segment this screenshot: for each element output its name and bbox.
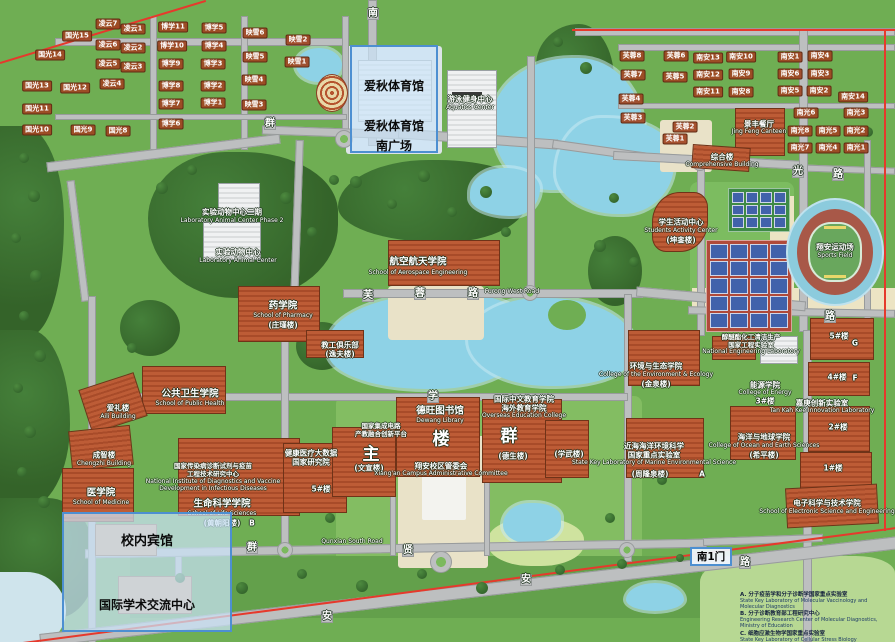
map-label: Dewang Library — [416, 418, 463, 424]
court-cell — [750, 313, 768, 328]
court-cell — [730, 244, 748, 259]
map-label: 2#楼 — [828, 423, 847, 431]
map-legend: A. 分子疫苗学和分子诊断学国家重点实验室 State Key Laborato… — [740, 592, 892, 642]
map-label: School of Pharmacy — [253, 313, 312, 319]
map-label: 景丰餐厅 — [744, 120, 774, 128]
campus-hotel-label: 校内宾馆 — [121, 530, 173, 549]
map-label: 国家研究院 — [292, 458, 330, 466]
south-gate-1-label: 南1门 — [697, 549, 725, 564]
map-label: Laboratory Animal Center — [199, 258, 276, 264]
court-cell — [730, 296, 748, 311]
map-label: 博学4 — [202, 41, 227, 52]
gym-label: 爱秋体育馆 — [364, 77, 424, 94]
map-label: 博学2 — [201, 81, 226, 92]
sports-courts — [706, 240, 792, 332]
map-label: 翔安校区管委会 — [415, 462, 468, 470]
tree — [28, 190, 40, 202]
tree — [553, 37, 563, 47]
map-label: 南安8 — [729, 87, 754, 98]
campus-boundary-line — [572, 29, 895, 31]
tree — [325, 513, 335, 523]
legend-item: C. 细胞应激生物学国家重点实验室 State Key Laboratory o… — [740, 631, 892, 642]
court-cell — [760, 205, 772, 216]
tree — [555, 565, 565, 575]
map-label: 凌云6 — [96, 40, 121, 51]
map-label: 映雪2 — [286, 35, 311, 46]
tree — [19, 153, 29, 163]
lake — [626, 583, 684, 611]
tree — [447, 207, 457, 217]
court-cell — [750, 244, 768, 259]
campus-hotel-highlight-box[interactable]: 校内宾馆 国际学术交流中心 — [62, 512, 232, 632]
map-label: 南安9 — [729, 69, 754, 80]
map-label: 近海海洋环境科学 — [624, 442, 684, 450]
map-label: 公共卫生学院 — [161, 389, 218, 399]
map-label: (希平楼) — [749, 451, 778, 459]
map-label: 医学院 — [87, 488, 116, 498]
map-label: College of the Environment & Ecology — [599, 372, 713, 378]
legend-item: A. 分子疫苗学和分子诊断学国家重点实验室 State Key Laborato… — [740, 592, 892, 610]
map-label: 芙蓉7 — [621, 70, 646, 81]
map-label: 南光3 — [844, 108, 869, 119]
map-label: 凌云4 — [100, 79, 125, 90]
plaza — [548, 300, 586, 330]
tree — [17, 467, 27, 477]
tree — [594, 240, 606, 252]
map-label: 南安3 — [808, 69, 833, 80]
gym-highlight-box[interactable]: 爱秋体育馆 爱秋体育馆 南广场 — [350, 45, 438, 153]
tree — [11, 233, 21, 243]
map-label: 映雪4 — [242, 75, 267, 86]
court-cell — [732, 205, 744, 216]
campus-map: 国光15国光14国光13国光12国光11国光10国光9国光8凌云7凌云1凌云6凌… — [0, 0, 895, 642]
map-label: 南安6 — [778, 69, 803, 80]
legend-item-en: State Key Laboratory of Cellular Stress … — [740, 638, 892, 642]
court-cell — [730, 278, 748, 293]
court-cell — [770, 313, 788, 328]
map-label: 贤 — [402, 545, 414, 557]
map-label: 实验动物中心二期 — [202, 208, 262, 216]
tree — [480, 186, 492, 198]
court-cell — [774, 192, 786, 203]
road — [67, 180, 90, 302]
map-label: State Key Laboratory of Marine Environme… — [572, 460, 736, 466]
map-label: 路 — [739, 557, 751, 569]
map-label: 博学1 — [201, 98, 226, 109]
court-cell — [746, 205, 758, 216]
tree — [617, 559, 627, 569]
map-label: 国光15 — [62, 31, 92, 42]
map-label: 游泳健身中心 — [448, 95, 493, 103]
map-label: 芙蓉2 — [673, 122, 698, 133]
map-label: 国光11 — [22, 104, 52, 115]
court-cell — [774, 217, 786, 228]
map-label: (逸夫楼) — [325, 350, 354, 358]
tree — [280, 192, 292, 204]
map-label: 芙蓉3 — [621, 113, 646, 124]
court-cell — [770, 296, 788, 311]
map-label: 南安2 — [807, 86, 832, 97]
intl-academic-exchange-center-label: 国际学术交流中心 — [99, 596, 195, 613]
road — [527, 56, 535, 298]
map-label: 国光14 — [35, 50, 65, 61]
map-label: 凌云3 — [121, 62, 146, 73]
map-label: 芙蓉8 — [620, 51, 645, 62]
map-label: (周隆泉楼) — [632, 470, 669, 478]
map-label: 德旺图书馆 — [416, 406, 464, 416]
map-label: 博学11 — [158, 22, 188, 33]
legend-item: B. 分子诊断教育部工程研究中心 Engineering Research Ce… — [740, 611, 892, 629]
tree — [13, 383, 23, 393]
map-label: Furong West Road — [485, 289, 539, 295]
map-label: 博学8 — [159, 81, 184, 92]
map-label: 能源学院 — [750, 381, 780, 389]
lake — [503, 503, 561, 543]
map-label: Students Activity Center — [644, 228, 717, 234]
map-label: Aquatics Center — [446, 105, 494, 111]
tree — [609, 193, 619, 203]
map-label: 3#楼 — [755, 397, 774, 405]
map-label: School of Medicine — [73, 500, 129, 506]
map-label: 电子科学与技术学院 — [793, 499, 861, 507]
tree — [350, 176, 362, 188]
court-cell — [750, 261, 768, 276]
map-label: 国家集成电路 — [362, 423, 401, 430]
map-label: 南安14 — [838, 92, 868, 103]
map-label: 翔安运动场 — [816, 243, 854, 251]
map-label: 国际中文教育学院 — [494, 395, 554, 403]
map-label: 安 — [520, 574, 532, 586]
tree — [38, 496, 50, 508]
goal-mark — [824, 275, 846, 278]
map-label: Sports Field — [818, 253, 853, 259]
map-label: 博学9 — [159, 59, 184, 70]
map-label: 嘉庚创新实验室 — [796, 399, 849, 407]
court-cell — [760, 192, 772, 203]
map-label: B — [249, 519, 255, 527]
court-cell — [750, 278, 768, 293]
map-label: Laboratory Animal Center Phase 2 — [180, 218, 283, 224]
court-cell — [770, 261, 788, 276]
south-plaza-label: 南广场 — [376, 137, 412, 154]
tree — [34, 350, 46, 362]
map-label: 国光10 — [22, 125, 52, 136]
map-label: School of Public Health — [156, 401, 225, 407]
tree — [187, 165, 197, 175]
map-label: 国光9 — [71, 125, 96, 136]
map-label: 映雪3 — [242, 100, 267, 111]
map-label: 南光6 — [794, 108, 819, 119]
court-cell — [730, 313, 748, 328]
court-cell — [732, 192, 744, 203]
map-label: 芙 — [362, 290, 374, 302]
map-label: 博学6 — [159, 119, 184, 130]
court-cell — [730, 261, 748, 276]
tree — [329, 175, 339, 185]
map-label: Comprehensive Building — [685, 162, 758, 168]
map-label: Chengzhi Building — [77, 461, 131, 467]
map-label: 南安10 — [726, 52, 756, 63]
map-label: (金泉楼) — [641, 380, 670, 388]
legend-item-en: Engineering Research Center of Molecular… — [740, 618, 892, 630]
map-label: 蓉 — [414, 288, 426, 300]
map-label: 南光1 — [844, 143, 869, 154]
map-label: 凌云5 — [96, 59, 121, 70]
map-label: 博学10 — [157, 41, 187, 52]
map-label: National Engineering Laboratory — [702, 349, 800, 355]
court-cell — [710, 261, 728, 276]
road — [55, 114, 347, 120]
map-label: 映雪5 — [243, 52, 268, 63]
map-label: Qunxian South Road — [321, 539, 382, 545]
court-cell — [770, 278, 788, 293]
tree — [476, 582, 488, 594]
map-label: School of Electronic Science and Enginee… — [759, 509, 894, 515]
tree — [307, 227, 317, 237]
tree — [580, 62, 592, 74]
map-label: Tan Kah Kee Innovation Laboratory — [770, 408, 875, 414]
map-label: 凌云7 — [96, 19, 121, 30]
map-label: (德生楼) — [498, 452, 527, 460]
map-label: 学 — [427, 391, 439, 403]
map-label: Development in Infectious Diseases — [159, 486, 267, 492]
map-label: 南安1 — [778, 52, 803, 63]
tree — [30, 270, 42, 282]
map-label: 1#楼 — [823, 464, 842, 472]
map-label: 安 — [321, 611, 333, 623]
map-label: 实验动物中心 — [216, 248, 261, 256]
campus-boundary-line — [884, 31, 886, 531]
map-label: 群 — [264, 118, 276, 130]
tree — [19, 311, 29, 321]
map-label: 路 — [467, 288, 479, 300]
map-label: 芙蓉1 — [663, 134, 688, 145]
map-label: 国光13 — [22, 81, 52, 92]
map-label: 凌云1 — [121, 24, 146, 35]
map-label: 国光12 — [60, 83, 90, 94]
tree — [236, 582, 248, 594]
map-label: 工程技术研究中心 — [187, 471, 239, 478]
court-cell — [750, 296, 768, 311]
map-label: (坤銮楼) — [666, 236, 695, 244]
court-cell — [774, 205, 786, 216]
map-label: 南 — [367, 8, 379, 20]
map-label: 楼 — [433, 432, 450, 449]
court-cell — [710, 296, 728, 311]
map-label: 学生活动中心 — [659, 218, 704, 226]
map-label: 国家重点实验室 — [628, 451, 681, 459]
map-label: 博学7 — [159, 99, 184, 110]
road — [797, 164, 895, 174]
map-label: A — [699, 470, 705, 478]
map-label: 芙蓉6 — [664, 51, 689, 62]
map-label: 博学5 — [202, 23, 227, 34]
map-label: 南安4 — [808, 51, 833, 62]
roundabout — [277, 542, 293, 558]
legend-item-en: State Key Laboratory of Molecular Vaccin… — [740, 599, 892, 611]
tree — [127, 343, 137, 353]
map-label: 南光7 — [788, 143, 813, 154]
tree — [417, 569, 427, 579]
map-label: 南安13 — [693, 53, 723, 64]
map-label: 路 — [824, 311, 836, 323]
map-label: 药学院 — [269, 301, 298, 311]
map-label: G — [852, 339, 858, 347]
tree — [676, 554, 684, 562]
map-label: 芙蓉5 — [663, 72, 688, 83]
map-label: 路 — [832, 169, 844, 181]
sports-courts — [728, 188, 790, 232]
tree — [501, 227, 511, 237]
gym-label-repeat: 爱秋体育馆 — [364, 117, 424, 134]
map-label: 国光8 — [106, 126, 131, 137]
map-label: 海洋与地球学院 — [738, 433, 791, 441]
map-label: School of Aerospace Engineering — [369, 270, 468, 276]
map-label: Jing Feng Canteen — [732, 129, 787, 135]
map-label: 南光8 — [788, 126, 813, 137]
map-label: 南安11 — [693, 87, 723, 98]
court-cell — [760, 217, 772, 228]
map-label: 南光4 — [816, 143, 841, 154]
court-cell — [710, 244, 728, 259]
court-cell — [732, 217, 744, 228]
map-label: College of Energy — [739, 390, 792, 396]
map-label: 生命科学学院 — [193, 499, 250, 509]
map-label: College of Ocean and Earth Sciences — [709, 443, 820, 449]
map-label: 产教融合创新平台 — [355, 431, 407, 438]
forest-area — [0, 126, 64, 336]
map-label: 南安5 — [778, 86, 803, 97]
tree — [356, 580, 368, 592]
map-label: Xiang'an Campus Administrative Committee — [374, 471, 507, 477]
map-label: 健康医疗大数据 — [285, 449, 338, 457]
map-label: F — [852, 374, 857, 382]
map-label: 教工俱乐部 — [321, 341, 359, 349]
map-label: 映雪1 — [285, 57, 310, 68]
map-label: 5#楼 — [829, 332, 848, 340]
tree — [605, 513, 615, 523]
map-label: 海外教育学院 — [502, 404, 547, 412]
map-label: 群 — [501, 429, 518, 446]
map-label: 南光5 — [816, 126, 841, 137]
court-cell — [746, 217, 758, 228]
building-block — [316, 74, 348, 112]
tree — [24, 426, 36, 438]
map-label: Overseas Education College — [482, 413, 566, 419]
tree — [156, 182, 168, 194]
map-label: 国家传染病诊断试剂与疫苗 — [174, 463, 252, 470]
map-label: 群 — [246, 542, 258, 554]
map-label: 醇醚酯化工清洁生产 — [722, 334, 781, 341]
court-cell — [710, 278, 728, 293]
south-gate-1-box[interactable]: 南1门 — [690, 547, 732, 566]
map-label: 综合楼 — [711, 153, 734, 161]
map-label: 爱礼楼 — [107, 404, 130, 412]
goal-mark — [824, 226, 846, 229]
map-label: 凌云2 — [121, 43, 146, 54]
map-label: 光 — [792, 166, 804, 178]
tree — [387, 199, 397, 209]
map-label: 主 — [363, 447, 380, 464]
map-label: (庄瑾楼) — [268, 321, 297, 329]
tree — [297, 569, 307, 579]
map-label: 4#楼 — [827, 373, 846, 381]
road — [618, 44, 895, 51]
tree — [629, 257, 639, 267]
tree — [418, 170, 430, 182]
map-label: Aili Building — [100, 414, 135, 420]
court-cell — [710, 313, 728, 328]
map-label: 芙蓉4 — [619, 94, 644, 105]
map-label: 南安12 — [693, 70, 723, 81]
map-label: 成智楼 — [93, 451, 116, 459]
map-label: 博学3 — [201, 59, 226, 70]
map-label: 5#楼 — [311, 485, 330, 493]
map-label: 映雪6 — [243, 28, 268, 39]
road — [150, 16, 157, 150]
court-cell — [746, 192, 758, 203]
roundabout — [430, 551, 452, 573]
map-label: (学武楼) — [554, 450, 583, 458]
map-label: 南光2 — [844, 126, 869, 137]
map-label: 环境与生态学院 — [630, 362, 683, 370]
roundabout — [619, 542, 635, 558]
map-label: 航空航天学院 — [389, 257, 446, 267]
